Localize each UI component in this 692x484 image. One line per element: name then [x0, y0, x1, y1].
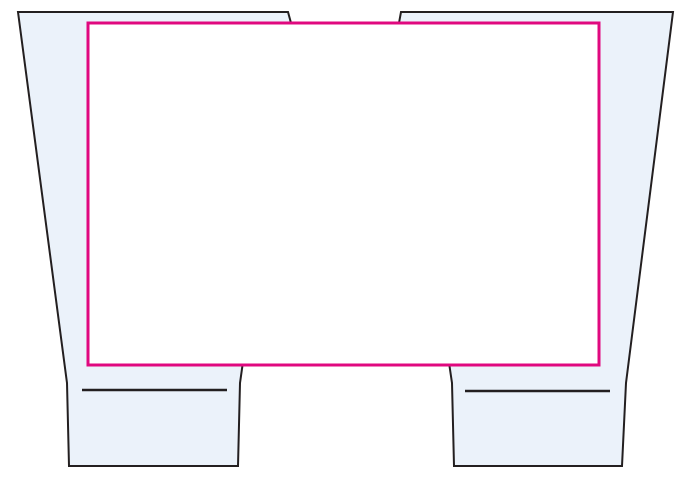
overlay-rectangle — [88, 23, 599, 365]
layout-canvas — [0, 0, 692, 484]
pattern-layout-figure — [0, 0, 692, 484]
